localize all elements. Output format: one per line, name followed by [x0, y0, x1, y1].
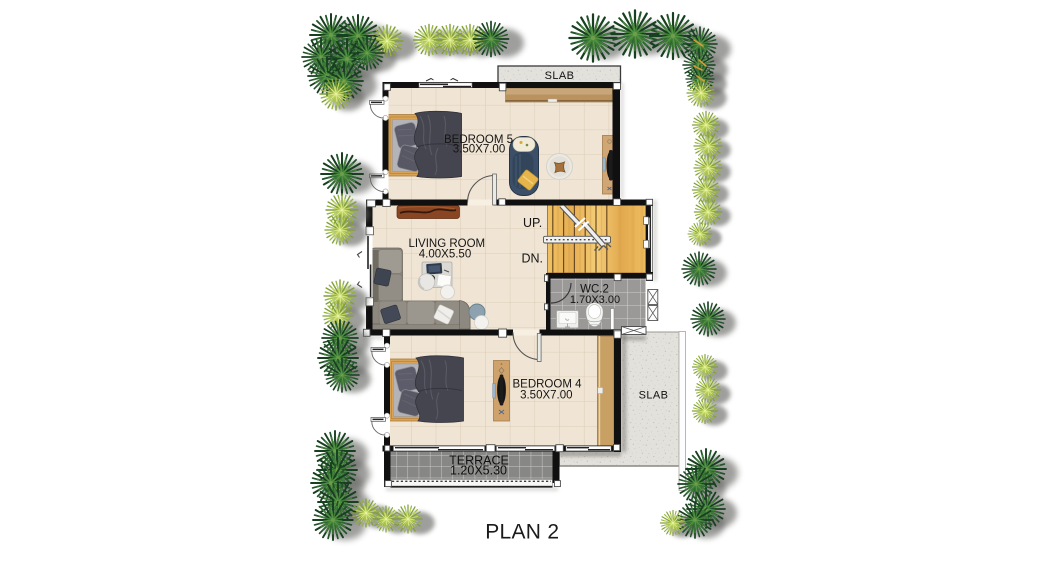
svg-text:3.50X7.00: 3.50X7.00: [520, 390, 572, 402]
svg-text:DN.: DN.: [522, 252, 544, 266]
svg-text:SLAB: SLAB: [545, 70, 575, 82]
svg-text:4.00X5.50: 4.00X5.50: [419, 249, 471, 261]
svg-text:SLAB: SLAB: [639, 390, 669, 402]
svg-text:1.20X5.30: 1.20X5.30: [450, 464, 507, 478]
svg-text:UP.: UP.: [523, 216, 542, 230]
svg-text:PLAN 2: PLAN 2: [485, 521, 559, 544]
svg-text:3.50X7.00: 3.50X7.00: [453, 144, 505, 156]
svg-text:1.70X3.00: 1.70X3.00: [570, 294, 620, 306]
